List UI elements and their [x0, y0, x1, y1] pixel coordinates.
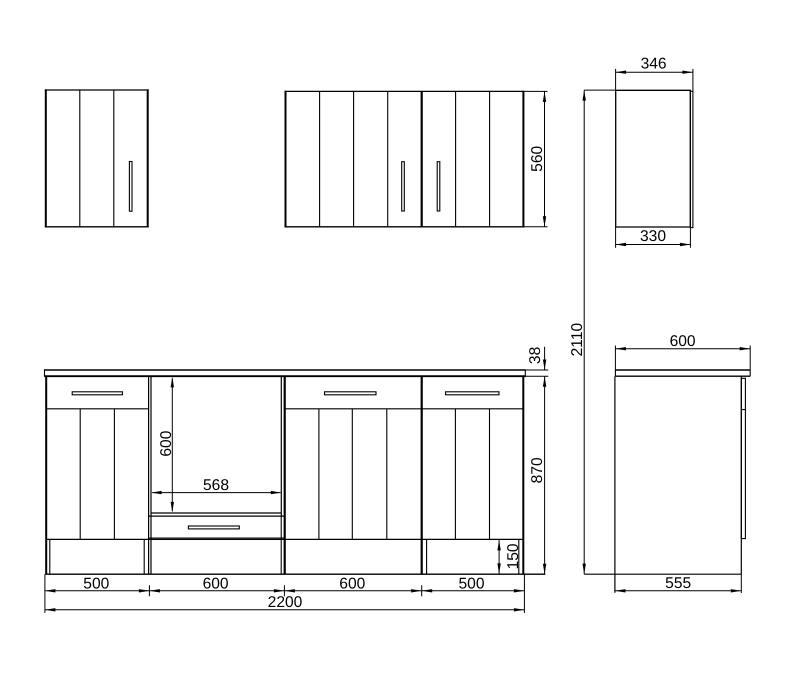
svg-text:150: 150 — [505, 543, 522, 569]
svg-text:600: 600 — [670, 333, 696, 350]
svg-text:600: 600 — [158, 430, 175, 456]
svg-text:500: 500 — [83, 575, 109, 592]
svg-text:346: 346 — [641, 56, 667, 73]
svg-text:555: 555 — [665, 575, 691, 592]
svg-text:600: 600 — [339, 575, 365, 592]
svg-text:560: 560 — [529, 145, 546, 171]
svg-text:330: 330 — [640, 228, 666, 245]
svg-text:2110: 2110 — [569, 323, 586, 357]
svg-text:600: 600 — [203, 575, 229, 592]
svg-text:2200: 2200 — [268, 594, 303, 611]
svg-text:870: 870 — [529, 457, 546, 483]
svg-text:568: 568 — [203, 477, 229, 494]
svg-text:38: 38 — [527, 347, 544, 364]
svg-text:500: 500 — [458, 575, 484, 592]
